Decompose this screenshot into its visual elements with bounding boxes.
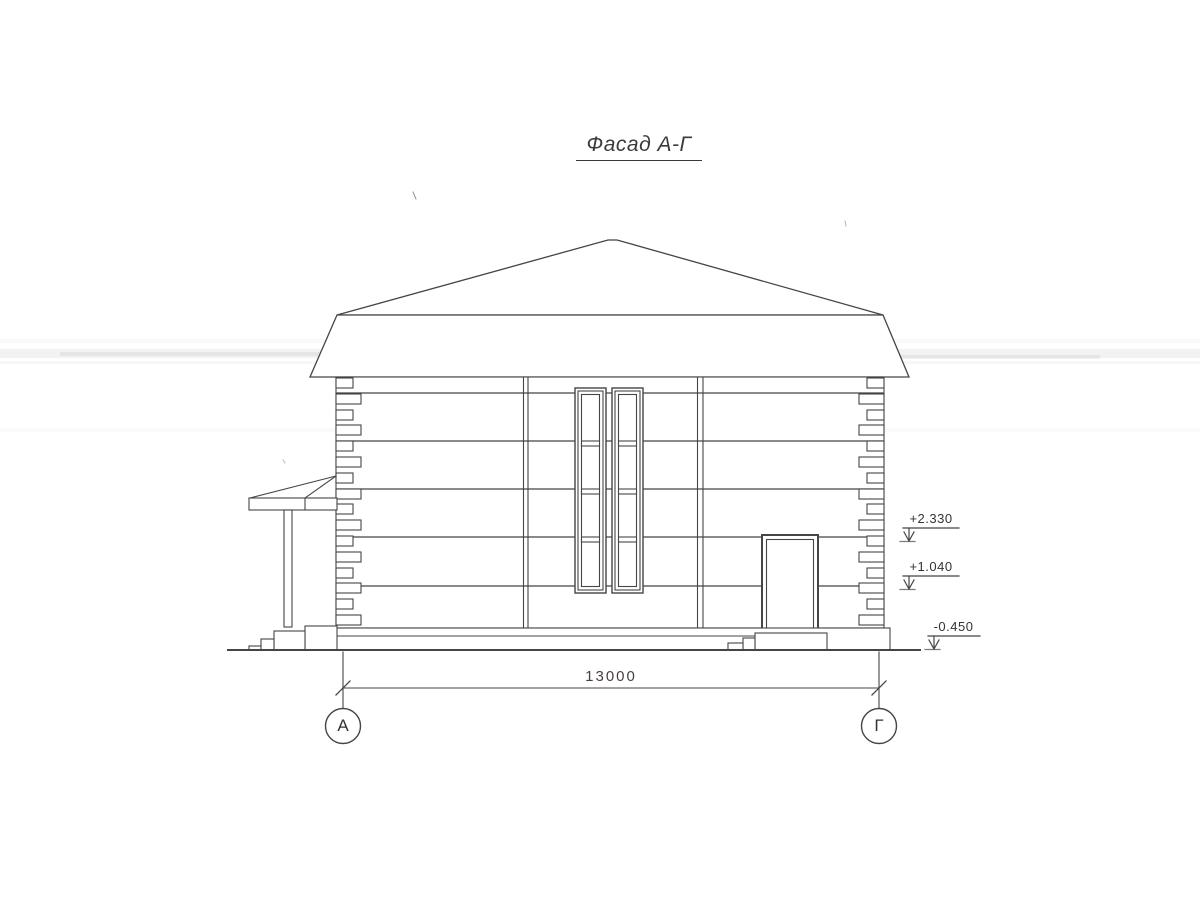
window-left-mullion (582, 441, 600, 446)
drawing-sheet: Фасад А-Г 13000 А Г +2.330 +1.040 -0.450 (0, 0, 1200, 900)
canopy-slope-outer (250, 476, 336, 498)
elevation-value-1040: +1.040 (903, 559, 959, 574)
elevation-mark-2330 (900, 528, 959, 542)
window-left (575, 388, 606, 593)
porch-steps-left (249, 626, 337, 650)
window-left-mullion (582, 489, 600, 494)
porch-post (284, 510, 292, 627)
window-right-mullion (619, 537, 637, 542)
porch-canopy (249, 476, 337, 510)
canopy-board (249, 498, 337, 510)
elevation-mark-minus-0450 (925, 636, 980, 650)
door-step (728, 643, 743, 650)
window-right-mullion (619, 441, 637, 446)
elevation-mark-1040 (900, 576, 959, 590)
axis-label-a: А (323, 716, 363, 736)
porch-deck (305, 626, 337, 650)
window-right-mullion (619, 489, 637, 494)
elevation-value-2330: +2.330 (903, 511, 959, 526)
door (762, 535, 818, 632)
porch-step (274, 631, 305, 650)
door-platform (755, 633, 827, 650)
window-left-mullion (582, 537, 600, 542)
roof-upper-slope (337, 240, 883, 315)
axis-label-g: Г (859, 716, 899, 736)
dimension-value: 13000 (561, 668, 661, 685)
roof-fascia (310, 315, 909, 377)
door-step (743, 638, 755, 650)
window-right (612, 388, 643, 593)
drawing-title: Фасад А-Г (576, 133, 702, 161)
canopy-brace (305, 476, 336, 498)
elevation-value-minus-0450: -0.450 (927, 619, 980, 634)
porch-step (261, 639, 274, 650)
